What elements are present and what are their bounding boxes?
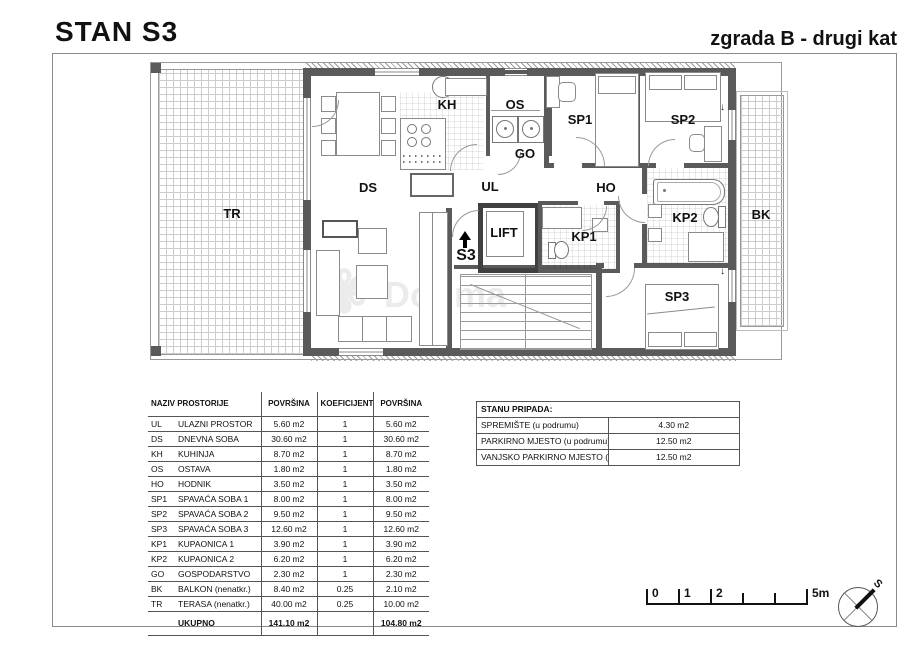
cell-coef: 0.25 [317,597,373,612]
cell-code: GO [148,567,175,582]
cell-area2: 9.50 m2 [373,507,429,522]
cell-code: DS [148,432,175,447]
scale-label: 5m [812,586,829,600]
burner-icon [407,124,417,134]
cell-empty [317,612,373,636]
cell-code: HO [148,477,175,492]
cell-area: 30.60 m2 [261,432,317,447]
cell-name: BALKON (nenatkr.) [175,582,261,597]
cell-area: 9.50 m2 [261,507,317,522]
cell-area: 2.30 m2 [261,567,317,582]
drain-dot [663,189,666,192]
cell-area: 12.60 m2 [261,522,317,537]
scale-tick [742,593,744,605]
cell-area: 1.80 m2 [261,462,317,477]
stairs-centerline [525,274,526,348]
cell-coef: 1 [317,552,373,567]
cell-area2: 12.60 m2 [373,522,429,537]
desk [704,126,722,162]
sink [648,228,662,242]
pillow [684,332,717,347]
room-label-tr: TR [223,206,240,221]
cell-coef: 1 [317,462,373,477]
table-row: KP2KUPAONICA 26.20 m216.20 m2 [148,552,429,567]
storage-room [486,70,552,156]
toilet-icon [554,241,569,259]
toilet-tank [718,206,726,228]
cell-value: 12.50 m2 [608,450,740,466]
cell-area: 8.40 m2 [261,582,317,597]
sofa [338,316,412,342]
wall [303,68,375,76]
belongs-title: STANU PRIPADA: [477,402,740,418]
cell-area: 6.20 m2 [261,552,317,567]
room-label-kp1: KP1 [571,229,596,244]
header-name: NAZIV PROSTORIJE [148,392,261,417]
cell-area: 3.90 m2 [261,537,317,552]
room-label-kh: KH [438,97,457,112]
wardrobe [419,212,448,346]
cell-area2: 10.00 m2 [373,597,429,612]
cell-coef: 1 [317,477,373,492]
scale-tick [710,589,712,605]
armchair [358,228,387,254]
header-area2: POVRŠINA [373,392,429,417]
cell-name: SPAVAĆA SOBA 3 [175,522,261,537]
cell-code: BK [148,582,175,597]
room-label-sp3: SP3 [665,289,690,304]
cell-code: KP2 [148,552,175,567]
tv-unit [322,220,358,238]
washing-machine [492,116,518,143]
wall-post [151,63,161,73]
cell-area2: 1.80 m2 [373,462,429,477]
cell-area: 8.70 m2 [261,447,317,462]
table-row: SP3SPAVAĆA SOBA 312.60 m2112.60 m2 [148,522,429,537]
table-row: HOHODNIK3.50 m213.50 m2 [148,477,429,492]
table-row: KHKUHINJA8.70 m218.70 m2 [148,447,429,462]
window [303,250,311,312]
cell-name: KUHINJA [175,447,261,462]
cell-name: HODNIK [175,477,261,492]
bath1-counter [542,207,582,229]
cell-coef: 1 [317,537,373,552]
cell-name: KUPAONICA 1 [175,537,261,552]
cell-code: TR [148,597,175,612]
total-label: UKUPNO [175,612,261,636]
scale-tick [774,593,776,605]
kitchen-island [410,173,454,197]
table-header-row: NAZIV PROSTORIJE POVRŠINA KOEFICIJENT PO… [148,392,429,417]
cell-area: 5.60 m2 [261,417,317,432]
cell-coef: 1 [317,447,373,462]
room-label-ul: UL [481,179,498,194]
kitchen-counter [445,78,487,96]
cell-name: TERASA (nenatkr.) [175,597,261,612]
chair [321,140,336,156]
window [375,68,419,76]
cell-coef: 1 [317,417,373,432]
desk-chair [558,82,576,102]
cell-code: SP1 [148,492,175,507]
cell-area2: 8.70 m2 [373,447,429,462]
cell-name: SPREMIŠTE (u podrumu) [477,418,609,434]
wall [728,140,736,270]
scale-tick [646,589,648,605]
bathtub-inner [657,182,721,202]
unit-label: S3 [456,247,476,265]
pillow [598,76,636,94]
scale-baseline [646,603,808,605]
cell-area2: 8.00 m2 [373,492,429,507]
table-row: SP1SPAVAĆA SOBA 18.00 m218.00 m2 [148,492,429,507]
burner-icon [407,137,417,147]
room-label-kp2: KP2 [672,210,697,225]
table-row: OSOSTAVA1.80 m211.80 m2 [148,462,429,477]
cell-coef: 0.25 [317,582,373,597]
counter-dots [403,155,441,157]
cell-coef: 1 [317,492,373,507]
chair [381,140,396,156]
cell-name: OSTAVA [175,462,261,477]
cell-area2: 5.60 m2 [373,417,429,432]
cell-area: 40.00 m2 [261,597,317,612]
wall-post [151,346,161,356]
cell-name: KUPAONICA 2 [175,552,261,567]
page-title: STAN S3 [55,16,178,48]
sink [648,204,662,218]
pillow [684,75,717,90]
header-area: POVRŠINA [261,392,317,417]
room-label-lift: LIFT [490,225,517,240]
cell-area2: 2.30 m2 [373,567,429,582]
toilet-icon [703,207,719,227]
cell-code: KH [148,447,175,462]
cell-area: 8.00 m2 [261,492,317,507]
cell-coef: 1 [317,567,373,582]
cell-code: SP3 [148,522,175,537]
area-table: NAZIV PROSTORIJE POVRŠINA KOEFICIJENT PO… [148,392,429,636]
table-row: BKBALKON (nenatkr.)8.40 m20.252.10 m2 [148,582,429,597]
room-label-go: GO [515,146,535,161]
cell-coef: 1 [317,507,373,522]
cell-code: SP2 [148,507,175,522]
cell-name: SPAVAĆA SOBA 2 [175,507,261,522]
cell-area: 3.50 m2 [261,477,317,492]
table-row: TRTERASA (nenatkr.)40.00 m20.2510.00 m2 [148,597,429,612]
entrance-arrow-icon [459,231,471,240]
scale-label: 1 [684,586,691,600]
table-row: KP1KUPAONICA 13.90 m213.90 m2 [148,537,429,552]
balcony-arrow-icon: ↓ [720,266,725,277]
burner-icon [421,124,431,134]
balcony-door [728,270,736,302]
window [339,348,383,356]
table-row: GOGOSPODARSTVO2.30 m212.30 m2 [148,567,429,582]
cell-name: PARKIRNO MJESTO (u podrumu) [477,434,609,450]
cell-name: ULAZNI PROSTOR [175,417,261,432]
page: { "header": { "title_left": "STAN S3", "… [0,0,919,650]
counter-dots [403,161,441,163]
scale-tick [678,589,680,605]
burner-icon [421,137,431,147]
cell-area2: 6.20 m2 [373,552,429,567]
scale-label: 2 [716,586,723,600]
cell-area2: 3.50 m2 [373,477,429,492]
chair [381,96,396,112]
door-opening [578,199,604,205]
desk-chair [689,134,705,152]
dining-table [336,92,380,156]
table-row: DSDNEVNA SOBA30.60 m2130.60 m2 [148,432,429,447]
compass: S [838,582,886,628]
total-area: 141.10 m2 [261,612,317,636]
stairs [460,274,592,350]
pillow [649,75,682,90]
cell-coef: 1 [317,432,373,447]
shower [688,232,724,262]
table-row: PARKIRNO MJESTO (u podrumu) 12.50 m2 [477,434,740,450]
sofa [316,250,340,316]
scale-label: 0 [652,586,659,600]
window [303,98,311,200]
cell-name: GOSPODARSTVO [175,567,261,582]
cell-name: VANJSKO PARKIRNO MJESTO (u prizemlju ili… [477,450,609,466]
wall [544,163,554,168]
coffee-table [356,265,388,299]
cell-coef: 1 [317,522,373,537]
cell-value: 12.50 m2 [608,434,740,450]
cell-name: SPAVAĆA SOBA 1 [175,492,261,507]
wall [311,348,339,356]
wall [303,200,311,250]
cell-code: KP1 [148,537,175,552]
pillow [648,332,682,347]
cell-area2: 2.10 m2 [373,582,429,597]
table-total-row: UKUPNO 141.10 m2 104.80 m2 [148,612,429,636]
washing-machine [518,116,544,143]
cell-empty [148,612,175,636]
table-row: SP2SPAVAĆA SOBA 29.50 m219.50 m2 [148,507,429,522]
cell-value: 4.30 m2 [608,418,740,434]
floor-plan: ✾ Dogma [148,60,788,362]
balcony-door [728,110,736,140]
cell-name: DNEVNA SOBA [175,432,261,447]
belongs-table: STANU PRIPADA: SPREMIŠTE (u podrumu) 4.3… [476,401,740,466]
room-label-bk: BK [752,207,771,222]
table-row: SPREMIŠTE (u podrumu) 4.30 m2 [477,418,740,434]
cell-area2: 3.90 m2 [373,537,429,552]
cell-area2: 30.60 m2 [373,432,429,447]
room-label-sp2: SP2 [671,112,696,127]
balcony-arrow-icon: ↓ [720,102,725,113]
total-area2: 104.80 m2 [373,612,429,636]
wall [303,312,311,356]
cell-code: UL [148,417,175,432]
page-subtitle: zgrada B - drugi kat [710,28,897,51]
room-label-os: OS [506,97,525,112]
wall [596,265,602,356]
chair [381,118,396,134]
room-label-sp1: SP1 [568,112,593,127]
wall-hatch [311,356,736,361]
scale-tick [806,589,808,605]
header-coef: KOEFICIJENT [317,392,373,417]
wall [728,68,736,110]
room-label-ds: DS [359,180,377,195]
cell-code: OS [148,462,175,477]
room-label-ho: HO [596,180,616,195]
scale-bar: 0 1 2 5m [646,584,831,612]
table-row: VANJSKO PARKIRNO MJESTO (u prizemlju ili… [477,450,740,466]
table-row: ULULAZNI PROSTOR5.60 m215.60 m2 [148,417,429,432]
table-title-row: STANU PRIPADA: [477,402,740,418]
